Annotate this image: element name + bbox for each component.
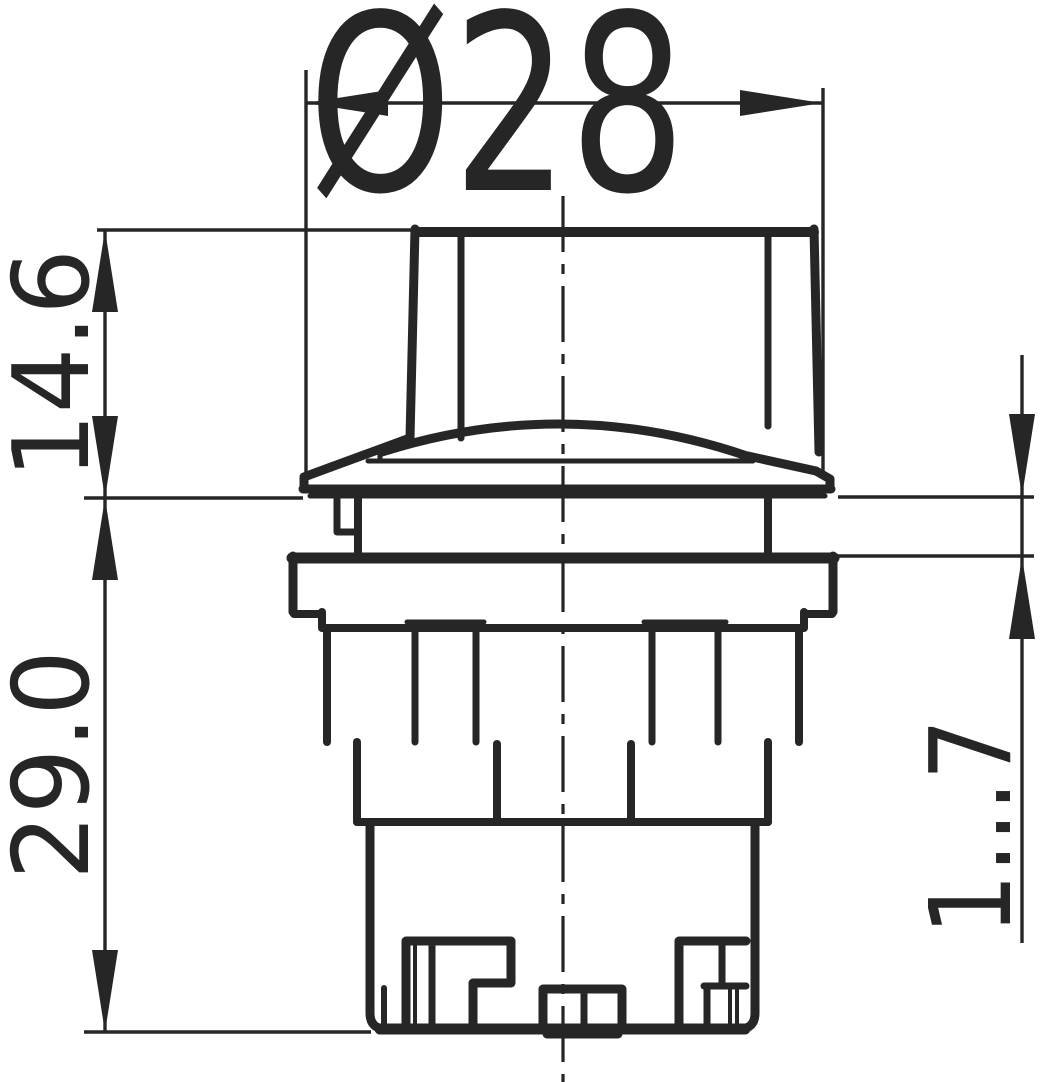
dimension-label-panel-thickness: 1...7 bbox=[907, 719, 1037, 936]
knob-right-edge bbox=[814, 229, 819, 452]
technical-drawing-canvas: Ø28 14.6 29.0 1...7 bbox=[0, 0, 1044, 1082]
dimension-label-lower-height: 29.0 bbox=[0, 650, 113, 880]
dimension-label-diameter: Ø28 bbox=[308, 0, 686, 248]
knob-left-edge bbox=[410, 229, 415, 438]
dimension-label-upper-height: 14.6 bbox=[0, 249, 113, 479]
technical-drawing-page: Ø28 14.6 29.0 1...7 bbox=[0, 0, 1044, 1082]
